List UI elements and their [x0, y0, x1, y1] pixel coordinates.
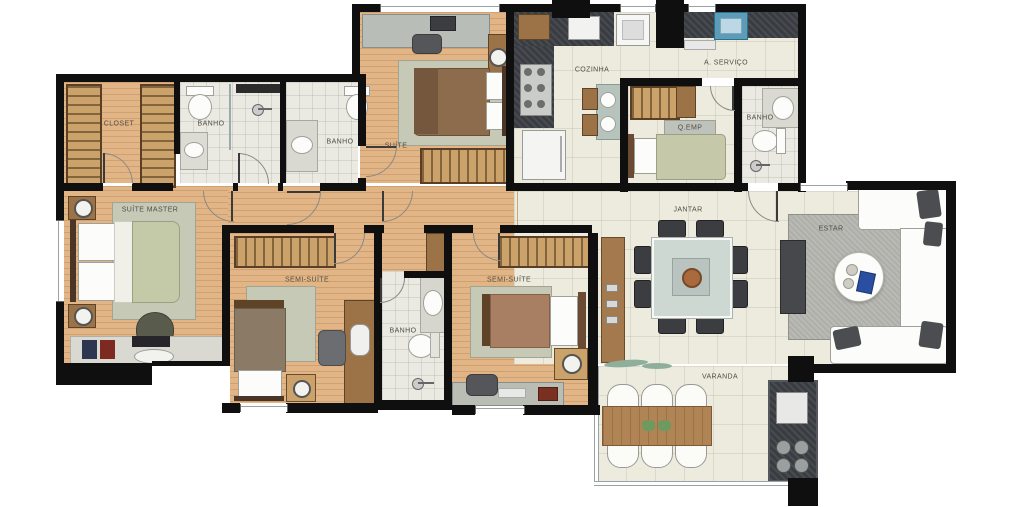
door-leaf [380, 278, 382, 302]
wall-segment [452, 405, 475, 415]
room-label-semi-suite-1: SEMI-SUÍTE [285, 277, 329, 284]
semi-suite-1-bed-pillow [238, 370, 282, 398]
room-label-semi-suite-2: SEMI-SUÍTE [487, 277, 531, 284]
dining-chair [696, 316, 724, 334]
wall-column [656, 0, 684, 48]
wall-segment [523, 405, 600, 415]
room-label-qemp: Q.EMP [678, 125, 703, 132]
wall-segment [620, 78, 702, 86]
door-leaf [287, 191, 320, 193]
master-bed-headboard [70, 220, 76, 302]
wall-segment [778, 183, 800, 191]
wall-segment [424, 225, 473, 233]
door-leaf [732, 86, 734, 110]
shower-window [236, 84, 282, 93]
dining-chair [658, 316, 686, 334]
wall-block [56, 363, 152, 385]
stove-burner [524, 100, 532, 108]
wall-segment [946, 181, 956, 373]
door-leaf [334, 233, 336, 263]
buffet-handle [606, 300, 618, 308]
door-leaf [231, 191, 233, 221]
master-bed-pillow [78, 262, 116, 301]
stove-burner [537, 100, 545, 108]
master-bed-sheet [114, 221, 134, 303]
wall-segment [222, 233, 230, 363]
dining-chair [730, 280, 748, 308]
room-label-closet: CLOSET [104, 121, 134, 128]
wall-segment [286, 403, 378, 413]
stove-burner [524, 68, 532, 76]
coffee-table-cup [846, 264, 858, 276]
door-leaf [498, 233, 500, 260]
wall-segment [444, 233, 452, 406]
dining-chair [658, 220, 686, 238]
door-leaf [776, 191, 778, 221]
kitchen-cutting-board [518, 14, 550, 40]
room-label-banho-servico: BANHO [747, 115, 774, 122]
wall-block [788, 356, 814, 382]
wall-segment [174, 82, 180, 154]
wall-segment [233, 183, 238, 191]
buffet-handle [606, 284, 618, 292]
semi-suite-1-chair [318, 330, 346, 366]
master-lamp [74, 307, 93, 326]
semi-suite-2-keyboard [498, 388, 526, 398]
centerpiece-bowl [682, 268, 702, 288]
room-label-cozinha: COZINHA [575, 67, 609, 74]
kitchen-chair [582, 88, 598, 110]
plant [642, 363, 672, 369]
door-leaf [238, 153, 240, 183]
wall-segment [320, 183, 366, 191]
floor-plan: CLOSET BANHO BANHO SUÍTE COZINHA A. SERV… [0, 0, 1024, 507]
wall-segment [56, 74, 364, 82]
room-label-suite-master: SUÍTE MASTER [122, 207, 179, 214]
master-bed-pillow [78, 223, 116, 261]
wall-segment [352, 4, 360, 82]
table-plant [642, 420, 655, 431]
wall-segment [506, 4, 514, 191]
sofa-cushion [923, 221, 943, 247]
dining-chair [696, 220, 724, 238]
toilet-tank [776, 128, 786, 154]
semi-suite-2-bed-headboard [578, 292, 586, 348]
wall-segment [364, 225, 384, 233]
sofa-cushion [916, 189, 942, 220]
semi-suite-2-desk-item [538, 387, 558, 401]
semi-suite-2-wardrobe [498, 236, 590, 268]
semi-suite-1-bed-blanket [234, 308, 286, 372]
semi-suite-2-lamp [562, 354, 582, 374]
wall-segment [132, 183, 173, 191]
closet-wardrobe-left [66, 84, 102, 188]
suite-desk-chair [412, 34, 442, 54]
semi-suite-1-wardrobe [234, 236, 336, 268]
tv-rack [780, 240, 806, 314]
kitchen-sink [568, 16, 600, 40]
dining-chair [634, 246, 652, 274]
master-console-books [82, 340, 97, 359]
qemp-bed-pillow [634, 138, 658, 174]
kitchen-plate [600, 116, 616, 132]
wall-segment [734, 78, 806, 86]
laundry-tank-basin [720, 18, 742, 34]
wall-column [552, 0, 590, 18]
room-label-varanda: VARANDA [702, 374, 738, 381]
table-plant [658, 420, 671, 431]
master-tv [132, 336, 170, 347]
shower-head-icon [252, 104, 264, 116]
semi-suite-1-lamp [293, 380, 311, 398]
shower-arm [418, 382, 434, 384]
kitchen-plate [600, 92, 616, 108]
wall-segment [374, 400, 452, 410]
window [380, 4, 500, 12]
room-label-banho-semi: BANHO [390, 328, 417, 335]
stove-burner [524, 84, 532, 92]
semi-suite-1-desk-chair-white [350, 324, 370, 356]
shower-arm [258, 108, 272, 110]
suite-wardrobe [420, 148, 514, 184]
stove-burner [537, 68, 545, 76]
master-lamp [74, 199, 93, 218]
semi-suite-2-chair [466, 374, 498, 396]
cooktop-burner [776, 440, 791, 455]
wall-segment [620, 84, 628, 192]
cooktop-burner [794, 440, 809, 455]
wall-segment [500, 225, 592, 233]
room-label-area-servico: A. SERVIÇO [704, 60, 748, 67]
buffet-handle [606, 316, 618, 324]
washbasin-sink [423, 290, 443, 316]
qemp-cabinet [676, 86, 696, 118]
varanda-table [602, 406, 712, 446]
qemp-wardrobe [630, 86, 680, 120]
window [240, 404, 288, 412]
window [688, 4, 716, 12]
wall-segment [358, 74, 366, 146]
room-label-suite: SUÍTE [385, 143, 408, 150]
master-bed-blanket [132, 221, 180, 303]
sofa-cushion [918, 321, 943, 350]
wall-segment [278, 183, 283, 191]
wall-segment [152, 361, 230, 366]
closet-wardrobe-right [140, 84, 176, 188]
varanda-railing-bottom [594, 481, 790, 486]
wall-segment [56, 74, 64, 190]
wall-segment [846, 181, 956, 190]
wall-segment [588, 233, 598, 415]
shower-arm [756, 164, 770, 166]
wall-segment [812, 364, 954, 373]
washbasin-sink [291, 136, 313, 154]
coffee-table-cup [843, 278, 854, 289]
wall-segment [404, 271, 444, 278]
washing-machine-lid [622, 20, 644, 40]
wall-segment [56, 183, 64, 220]
room-label-banho-master: BANHO [198, 121, 225, 128]
wall-segment [222, 225, 334, 233]
floor-transition-line [517, 191, 518, 225]
semi-suite-2-bed-footboard [482, 294, 490, 346]
window [800, 183, 848, 191]
wall-segment [514, 183, 748, 191]
room-label-jantar: JANTAR [673, 207, 702, 214]
wall-segment [734, 86, 742, 192]
wall-segment [374, 233, 382, 406]
window [56, 220, 64, 302]
qemp-bed-blanket [656, 134, 726, 180]
shower-glass-divider [229, 84, 231, 150]
kitchen-chair [582, 114, 598, 136]
door-leaf [103, 153, 105, 183]
window [475, 406, 525, 414]
toilet-bowl [188, 94, 212, 120]
room-label-estar: ESTAR [819, 226, 844, 233]
washbasin-sink [184, 142, 204, 158]
shower-head-icon [750, 160, 762, 172]
suite-desk-monitor [430, 16, 456, 31]
fridge-handle [560, 136, 562, 172]
toilet-tank [430, 332, 440, 358]
dining-chair [634, 280, 652, 308]
door-leaf [382, 191, 384, 221]
suite-bed-throw [414, 68, 438, 134]
cooktop-burner [776, 458, 791, 473]
wall-block [788, 478, 818, 506]
washbasin-sink [772, 96, 794, 120]
wall-segment [280, 82, 286, 183]
shower-head-icon [412, 378, 424, 390]
semi-suite-2-bed-blanket [490, 294, 550, 348]
toilet-bowl [752, 130, 778, 152]
barbecue-sink [776, 392, 808, 424]
master-console-books [100, 340, 115, 359]
wall-segment [798, 4, 806, 192]
dining-chair [730, 246, 748, 274]
cooktop-burner [794, 458, 809, 473]
room-label-banho-suite: BANHO [327, 139, 354, 146]
wall-segment [222, 403, 240, 413]
wall-segment [56, 300, 64, 363]
window [620, 4, 656, 12]
semi-suite-1-bed-footboard [234, 300, 284, 308]
service-shelf [684, 40, 716, 50]
semi-suite-1-bed-headboard [234, 396, 284, 401]
stove-burner [537, 84, 545, 92]
semi-suite-2-bed-pillow [550, 296, 578, 346]
